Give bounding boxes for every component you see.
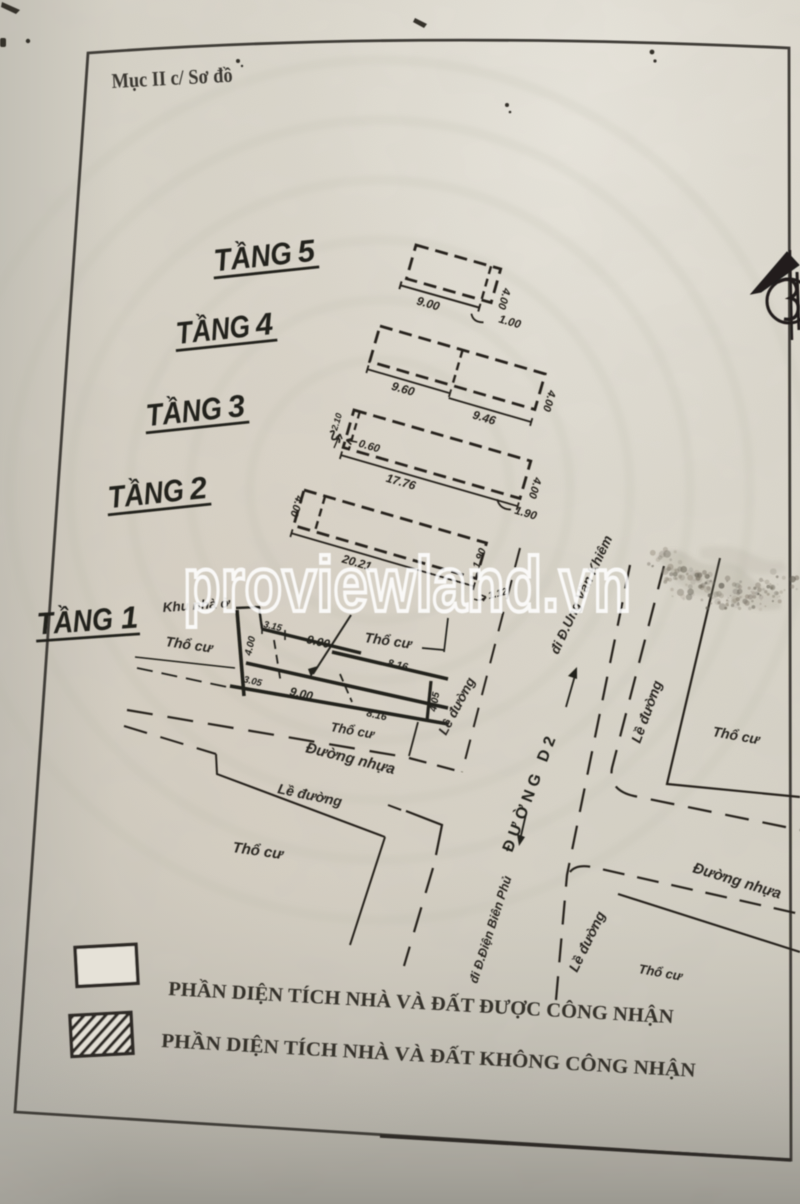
svg-text:4: 4 (253, 306, 275, 343)
svg-text:3: 3 (226, 388, 247, 425)
svg-text:1: 1 (120, 599, 140, 635)
svg-text:proviewland.vn: proviewland.vn (183, 542, 631, 628)
svg-text:2: 2 (187, 470, 209, 507)
